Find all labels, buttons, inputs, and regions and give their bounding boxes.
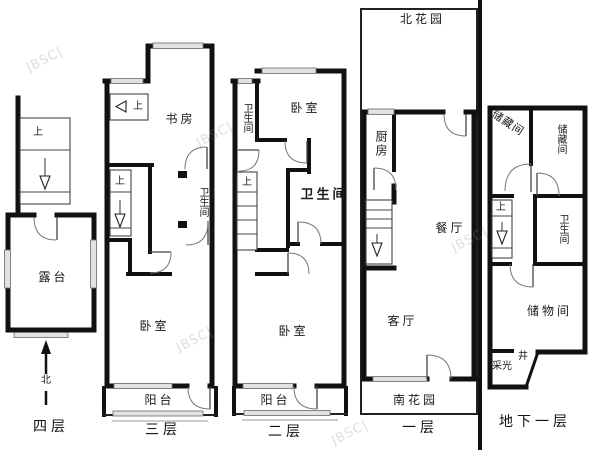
door <box>288 253 309 274</box>
room-label-bedroom: 卧室 <box>136 320 169 332</box>
stair-up-label: 上 <box>133 102 143 112</box>
door <box>537 173 559 196</box>
room-label-balcony: 阳台 <box>141 394 174 406</box>
stair-up-label: 上 <box>33 128 43 138</box>
room-label-bathroom: 卫生间 <box>241 101 251 133</box>
door <box>510 264 533 287</box>
window <box>14 333 68 338</box>
window <box>111 79 143 84</box>
room-label-lightwell: 采光 <box>492 362 512 372</box>
north-arrow <box>41 340 51 405</box>
door <box>427 355 451 379</box>
floorplan-drawing <box>0 0 600 450</box>
room-label-balcony: 阳台 <box>257 394 290 406</box>
window <box>238 79 252 84</box>
floor-label-1: 一层 <box>398 421 438 435</box>
wall-stub <box>178 171 187 178</box>
window <box>114 384 172 389</box>
door <box>444 114 466 136</box>
window <box>368 109 394 115</box>
door <box>298 222 321 244</box>
room-label-bathroom: 卫生间 <box>297 189 348 202</box>
room-label-bedroom: 卧室 <box>287 102 320 114</box>
room-label-dining: 餐厅 <box>432 222 465 234</box>
window <box>91 240 97 288</box>
north-label: 北 <box>41 376 51 386</box>
window <box>153 43 203 49</box>
floor-label-3: 三层 <box>141 423 181 437</box>
room-label-terrace: 露台 <box>35 271 68 283</box>
room-label-study: 书房 <box>162 113 195 125</box>
room-label-storeroom: 储物间 <box>524 305 572 317</box>
basement-plan <box>490 108 585 387</box>
staircase <box>366 200 392 264</box>
room-label-bathroom: 卫生间 <box>557 212 567 244</box>
door <box>185 147 207 169</box>
door <box>186 221 208 245</box>
stair-up-label: 上 <box>496 203 506 213</box>
room-label-storage: 储藏间 <box>555 122 565 154</box>
wall-stub <box>178 221 187 228</box>
floor4-plan <box>5 98 97 405</box>
window <box>5 250 11 288</box>
door <box>150 252 171 273</box>
floor-label-basement: 地下一层 <box>495 415 571 429</box>
floorplan-page: JBSC| JBSC| JBSC| JBSC| JBSC| 上 露台 北 四层 … <box>0 0 600 450</box>
window <box>373 377 427 382</box>
staircase <box>20 118 70 204</box>
floor3-plan <box>104 43 216 421</box>
floor-label-2: 二层 <box>264 425 304 439</box>
floor-label-4: 四层 <box>29 420 69 434</box>
room-label-kitchen: 厨房 <box>375 128 387 158</box>
room-label-lightwell: 井 <box>518 352 528 362</box>
stair-up-label: 上 <box>115 177 125 187</box>
door <box>238 150 259 171</box>
window <box>243 384 293 389</box>
room-label-north-garden: 北花园 <box>397 13 445 25</box>
door <box>505 164 531 192</box>
door <box>285 141 307 163</box>
room-label-living: 客厅 <box>384 315 417 327</box>
door <box>34 217 57 240</box>
window <box>262 68 316 74</box>
room-label-bedroom: 卧室 <box>275 325 308 337</box>
room-label-south-garden: 南花园 <box>390 394 438 406</box>
stair-up-label: 上 <box>242 178 252 188</box>
room-label-bathroom: 卫生间 <box>197 185 207 217</box>
